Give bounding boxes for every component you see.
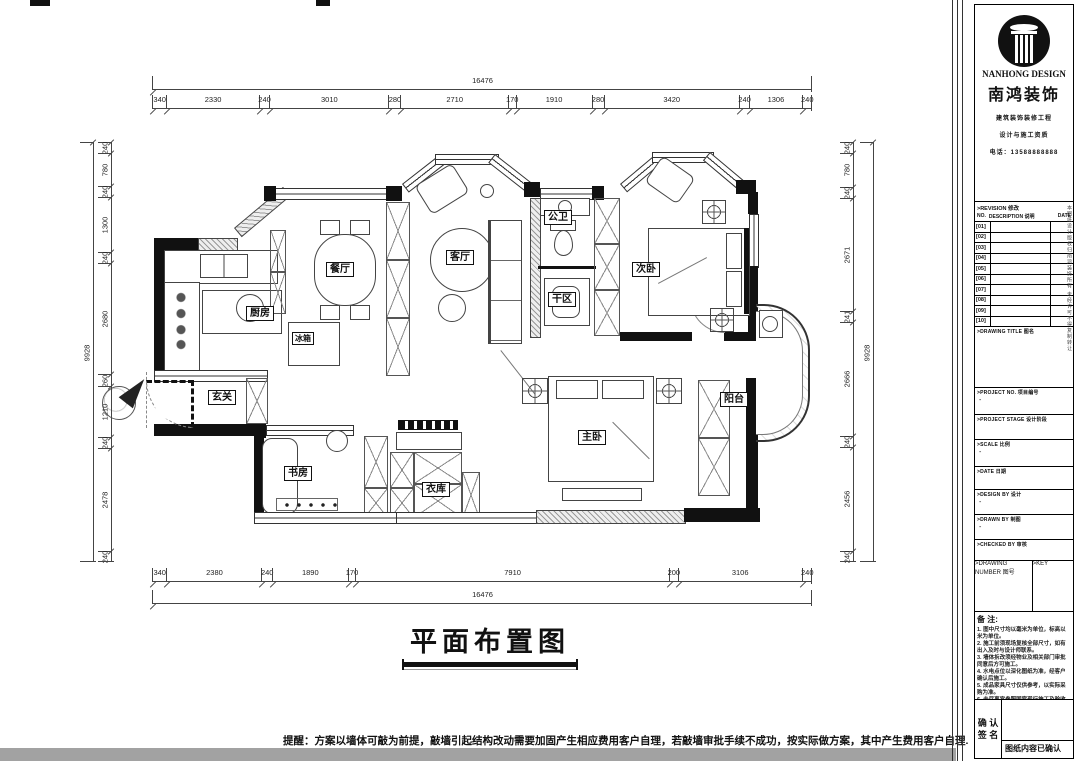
revision-row: [04] bbox=[975, 254, 1073, 265]
wall bbox=[386, 186, 402, 201]
dim-segment: 240 bbox=[802, 95, 812, 108]
revision-row: [01] bbox=[975, 222, 1073, 233]
dim-segment: 1306 bbox=[749, 95, 801, 108]
cabinet bbox=[386, 260, 410, 318]
binding-line bbox=[962, 0, 963, 761]
wardrobe bbox=[414, 452, 462, 484]
stove bbox=[167, 290, 195, 352]
field-checked-by: >CHECKED BY 审核 bbox=[975, 540, 1073, 561]
revision-row: [10] bbox=[975, 317, 1073, 328]
nightstand bbox=[702, 200, 726, 224]
window bbox=[749, 214, 759, 268]
dim-segment: 240 bbox=[98, 437, 111, 448]
pillow bbox=[726, 233, 742, 269]
sheet-mark bbox=[30, 0, 50, 6]
field-scale: >SCALE 比例 - bbox=[975, 440, 1073, 467]
title-block: NANHONG DESIGN 南鸿装饰 建筑装饰装修工程 设计与施工资质 电话：… bbox=[974, 4, 1074, 759]
pillow bbox=[556, 380, 598, 399]
reminder-note: 提醒：方案以墙体可敲为前提，敲墙引起结构改动需要加固产生相应费用客户自理，若敲墙… bbox=[283, 733, 959, 748]
dim-segment: 2666 bbox=[840, 322, 853, 435]
wall bbox=[154, 424, 266, 436]
dim-segment: 2478 bbox=[98, 448, 111, 551]
room-label: 厨房 bbox=[246, 306, 274, 321]
drawing-sheet: 厨房 冰箱 餐厅 客厅 公卫 干区 次卧 玄关 书房 衣库 主卧 阳台 1647… bbox=[0, 0, 1080, 761]
note-line: 2. 施工前须现场复核全部尺寸，如有出入及时与设计师联系。 bbox=[977, 641, 1071, 655]
dim-segment: 240 bbox=[98, 142, 111, 153]
room-label: 主卧 bbox=[578, 430, 606, 445]
dim-segment: 240 bbox=[98, 252, 111, 263]
room-label: 干区 bbox=[548, 292, 576, 307]
hatched-wall bbox=[536, 510, 686, 524]
revision-columns: NO. DESCRIPTION 说明 DATE bbox=[975, 212, 1073, 222]
cabinet bbox=[386, 202, 410, 260]
dimension-top-total: 16476 bbox=[152, 76, 812, 90]
toilet bbox=[554, 230, 573, 256]
col-no: NO. bbox=[977, 213, 986, 220]
bench bbox=[562, 488, 642, 501]
cabinet bbox=[364, 436, 388, 488]
confirm-box: 确 认 签 名 图纸内容已确认 bbox=[975, 700, 1073, 758]
room-label: 衣库 bbox=[422, 482, 450, 497]
dim-segment: 2380 bbox=[166, 568, 261, 581]
dim-segment: 2680 bbox=[98, 263, 111, 375]
note-line: 1. 图中尺寸均以毫米为单位，标高以米为单位。 bbox=[977, 627, 1071, 641]
wardrobe bbox=[698, 438, 730, 496]
dim-segment: 280 bbox=[592, 95, 604, 108]
dim-segment: 200 bbox=[669, 568, 678, 581]
shelf-dots bbox=[276, 498, 338, 511]
dim-segment: 241 bbox=[840, 311, 853, 322]
pillow bbox=[726, 271, 742, 307]
revision-row: [08] bbox=[975, 296, 1073, 307]
cabinet bbox=[386, 318, 410, 376]
field-drawn-by: >DRAWN BY 制图 - bbox=[975, 515, 1073, 540]
cabinet bbox=[594, 198, 620, 244]
revision-row: [05] bbox=[975, 264, 1073, 275]
field-drawing-number: >DRAWING NUMBER 图号 >KEY bbox=[975, 561, 1073, 612]
floor-lamp bbox=[480, 184, 494, 198]
field-date: >DATE 日期 bbox=[975, 467, 1073, 490]
dimension-right-segments: 240780240267124126662402456240 bbox=[840, 142, 854, 562]
binding-line bbox=[957, 0, 958, 761]
wall bbox=[154, 238, 164, 380]
dimension-left-total: 9928 bbox=[80, 142, 94, 562]
dimension-top-segments: 3402330240301028027101701910280342024013… bbox=[152, 95, 812, 109]
wall bbox=[264, 186, 276, 201]
plan-title-text: 平面布置图 bbox=[410, 627, 570, 657]
field-project-no: >PROJECT NO. 项目编号 - bbox=[975, 388, 1073, 415]
dim-segment: 1210 bbox=[98, 386, 111, 437]
dim-segment: 240 bbox=[840, 551, 853, 562]
dim-segment: 2671 bbox=[840, 198, 853, 311]
brand-cn: 南鸿装饰 bbox=[975, 81, 1073, 105]
plan-title: 平面布置图 bbox=[378, 620, 602, 670]
room-label: 公卫 bbox=[544, 210, 572, 225]
room-label: 玄关 bbox=[208, 390, 236, 405]
dim-segment: 240 bbox=[739, 95, 749, 108]
room-label: 客厅 bbox=[446, 250, 474, 265]
dim-segment: 260 bbox=[98, 374, 111, 386]
double-sink bbox=[200, 254, 248, 278]
cabinet bbox=[594, 290, 620, 336]
dim-segment: 780 bbox=[840, 153, 853, 187]
notes-title: 备 注: bbox=[977, 614, 1071, 625]
field-design-by: >DESIGN BY 设计 - bbox=[975, 490, 1073, 515]
room-label: 阳台 bbox=[720, 392, 748, 407]
dim-segment: 2456 bbox=[840, 447, 853, 551]
pillow bbox=[602, 380, 644, 399]
wall bbox=[620, 332, 692, 341]
confirm-note: 图纸内容已确认 bbox=[1002, 740, 1073, 758]
cabinet bbox=[594, 244, 620, 290]
wall bbox=[254, 424, 266, 438]
wall bbox=[524, 182, 540, 197]
floor-plan: 厨房 冰箱 餐厅 客厅 公卫 干区 次卧 玄关 书房 衣库 主卧 阳台 bbox=[150, 140, 812, 565]
window bbox=[274, 188, 390, 200]
nightstand bbox=[710, 308, 734, 332]
wardrobe bbox=[698, 380, 730, 438]
dim-segment: 780 bbox=[98, 153, 111, 186]
field-drawing-title: >DRAWING TITLE 图名 bbox=[975, 327, 1073, 388]
side-table bbox=[438, 294, 466, 322]
revision-title: >REVISION 修改 bbox=[975, 202, 1073, 212]
washer-drum bbox=[762, 316, 778, 332]
dim-segment: 240 bbox=[840, 187, 853, 198]
dim-segment: 170 bbox=[348, 568, 356, 581]
revision-row: [09] bbox=[975, 306, 1073, 317]
brand-en: NANHONG DESIGN bbox=[975, 69, 1073, 79]
headboard bbox=[744, 228, 749, 314]
brand-subline: 设计与施工资质 bbox=[975, 130, 1073, 139]
dim-segment: 280 bbox=[388, 95, 400, 108]
nightstand bbox=[522, 378, 548, 404]
dim-segment: 1910 bbox=[516, 95, 592, 108]
chair bbox=[320, 220, 340, 235]
window bbox=[396, 512, 538, 524]
revision-row: [03] bbox=[975, 243, 1073, 254]
brand-subline: 电话：13588888888 bbox=[975, 147, 1073, 156]
stool bbox=[326, 430, 348, 452]
binding-line bbox=[952, 0, 953, 761]
dim-segment: 7910 bbox=[355, 568, 669, 581]
dim-segment: 240 bbox=[840, 142, 853, 153]
dim-segment: 240 bbox=[98, 186, 111, 197]
dim-segment: 170 bbox=[508, 95, 516, 108]
nanhong-logo-icon bbox=[998, 15, 1050, 67]
sheet-mark bbox=[316, 0, 330, 6]
entry-door-swing bbox=[146, 380, 194, 428]
dimension-bottom-total: 16476 bbox=[152, 590, 812, 604]
room-label: 餐厅 bbox=[326, 262, 354, 277]
room-label: 书房 bbox=[284, 466, 312, 481]
sheet-shadow-bar bbox=[0, 748, 956, 761]
nightstand bbox=[656, 378, 682, 404]
chair bbox=[350, 305, 370, 320]
wall bbox=[724, 332, 758, 341]
tv-wall bbox=[398, 420, 458, 430]
panel-header: NANHONG DESIGN 南鸿装饰 建筑装饰装修工程 设计与施工资质 电话：… bbox=[975, 5, 1073, 202]
title-underline-thin bbox=[404, 669, 576, 670]
dim-segment: 340 bbox=[152, 95, 166, 108]
dimension-bottom-segments: 3402380240189017079102003106240 bbox=[152, 568, 812, 582]
field-project-stage: >PROJECT STAGE 设计阶段 bbox=[975, 415, 1073, 440]
room-label: 冰箱 bbox=[292, 332, 314, 345]
room-label: 次卧 bbox=[632, 262, 660, 277]
note-line: 4. 水电点位以深化图纸为准，经客户确认后施工。 bbox=[977, 669, 1071, 683]
title-underline bbox=[404, 662, 576, 667]
wall bbox=[538, 266, 596, 269]
window bbox=[254, 512, 398, 524]
cabinet bbox=[270, 230, 286, 272]
dimension-left-segments: 2407802401300240268026012102402478240 bbox=[98, 142, 112, 562]
copyright-side-text: 本图纸设计版权归南鸿装饰所有 未经许可不得复制转让 bbox=[1066, 205, 1073, 585]
dim-segment: 340 bbox=[152, 568, 166, 581]
dim-segment: 3010 bbox=[269, 95, 388, 108]
shoe-cabinet bbox=[246, 378, 268, 424]
revision-row: [07] bbox=[975, 285, 1073, 296]
dimension-right-total: 9928 bbox=[860, 142, 874, 562]
revision-row: [06] bbox=[975, 275, 1073, 286]
revision-row: [02] bbox=[975, 233, 1073, 244]
confirm-label: 确 认 签 名 bbox=[975, 700, 1002, 758]
brand-subline: 建筑装饰装修工程 bbox=[975, 113, 1073, 122]
sofa bbox=[488, 220, 522, 344]
cabinet bbox=[390, 452, 414, 488]
wall bbox=[154, 238, 198, 250]
wall bbox=[748, 192, 758, 214]
notes-list: 1. 图中尺寸均以毫米为单位，标高以米为单位。2. 施工前须现场复核全部尺寸，如… bbox=[977, 627, 1071, 700]
dim-segment: 2710 bbox=[400, 95, 507, 108]
note-line: 5. 成品家具尺寸仅供参考，以实际采购为准。 bbox=[977, 683, 1071, 697]
dim-segment: 240 bbox=[98, 551, 111, 562]
dim-segment: 3420 bbox=[604, 95, 739, 108]
dim-segment: 3106 bbox=[678, 568, 802, 581]
col-desc: DESCRIPTION 说明 bbox=[989, 213, 1035, 220]
revision-table: >REVISION 修改 NO. DESCRIPTION 说明 DATE [01… bbox=[975, 202, 1073, 327]
dim-segment: 240 bbox=[259, 95, 269, 108]
dim-segment: 240 bbox=[840, 436, 853, 447]
dim-segment: 240 bbox=[802, 568, 812, 581]
dim-segment: 1890 bbox=[272, 568, 348, 581]
note-line: 3. 墙体拆改须经物业及相关部门审批同意后方可施工。 bbox=[977, 655, 1071, 669]
notes-section: 备 注: 1. 图中尺寸均以毫米为单位，标高以米为单位。2. 施工前须现场复核全… bbox=[975, 612, 1073, 700]
dim-segment: 2330 bbox=[166, 95, 259, 108]
tv-console bbox=[396, 432, 462, 450]
signature-area[interactable] bbox=[1002, 700, 1073, 740]
dim-segment: 1300 bbox=[98, 197, 111, 252]
dim-segment: 240 bbox=[261, 568, 271, 581]
chair bbox=[350, 220, 370, 235]
revision-rows: [01][02][03][04][05][06][07][08][09][10] bbox=[975, 222, 1073, 327]
chair bbox=[320, 305, 340, 320]
